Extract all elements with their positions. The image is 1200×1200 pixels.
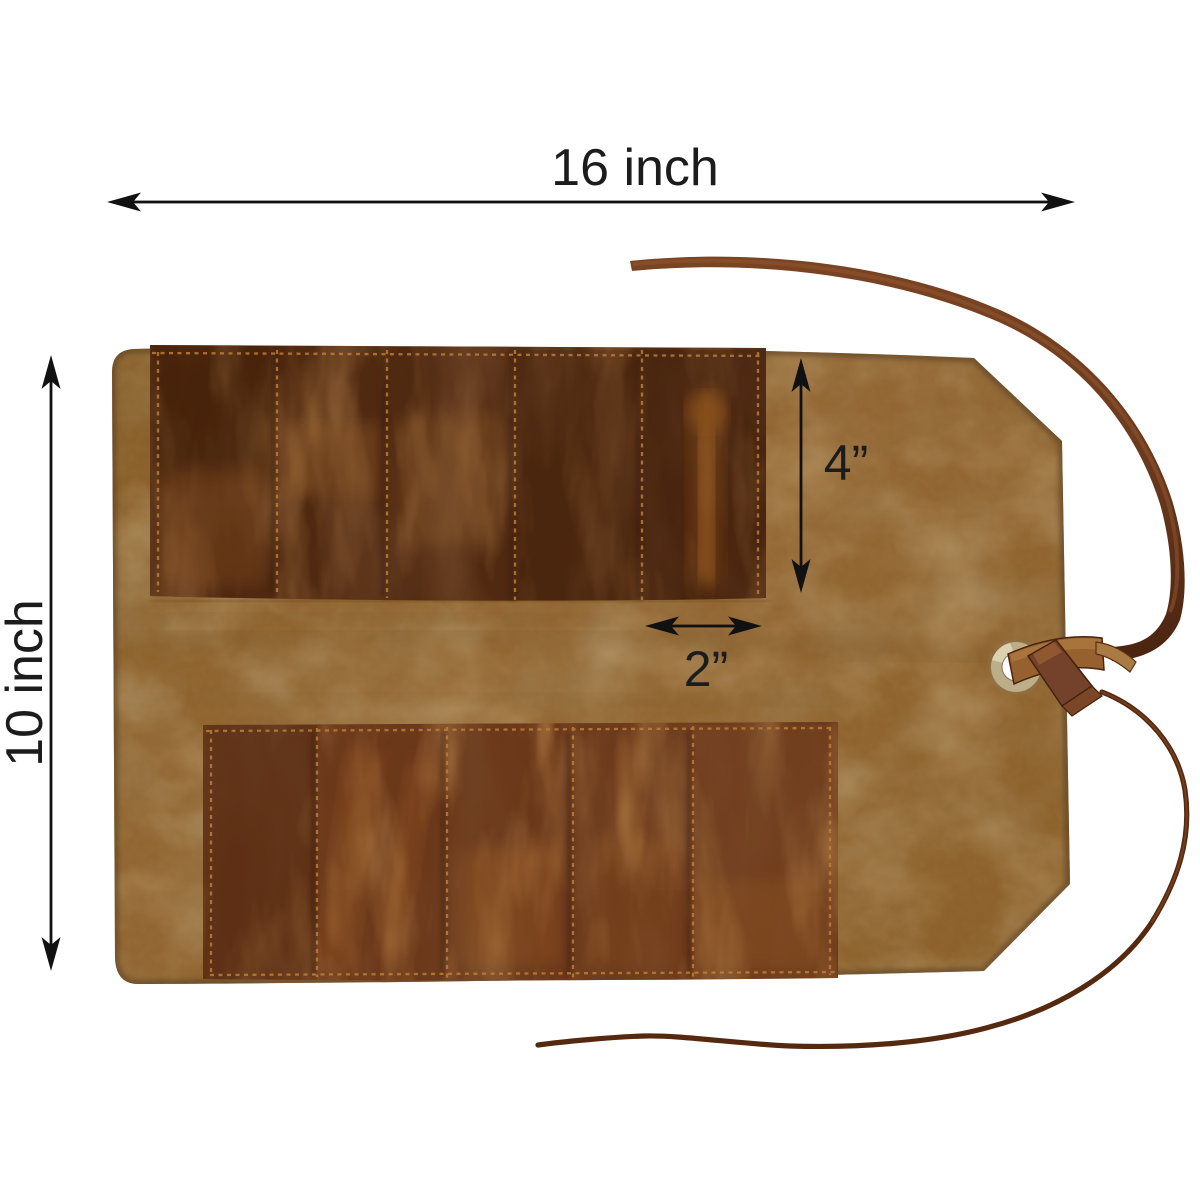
svg-text:2”: 2” <box>684 641 728 697</box>
svg-text:16 inch: 16 inch <box>551 139 719 197</box>
svg-text:10 inch: 10 inch <box>0 599 54 767</box>
svg-text:4”: 4” <box>824 435 868 491</box>
